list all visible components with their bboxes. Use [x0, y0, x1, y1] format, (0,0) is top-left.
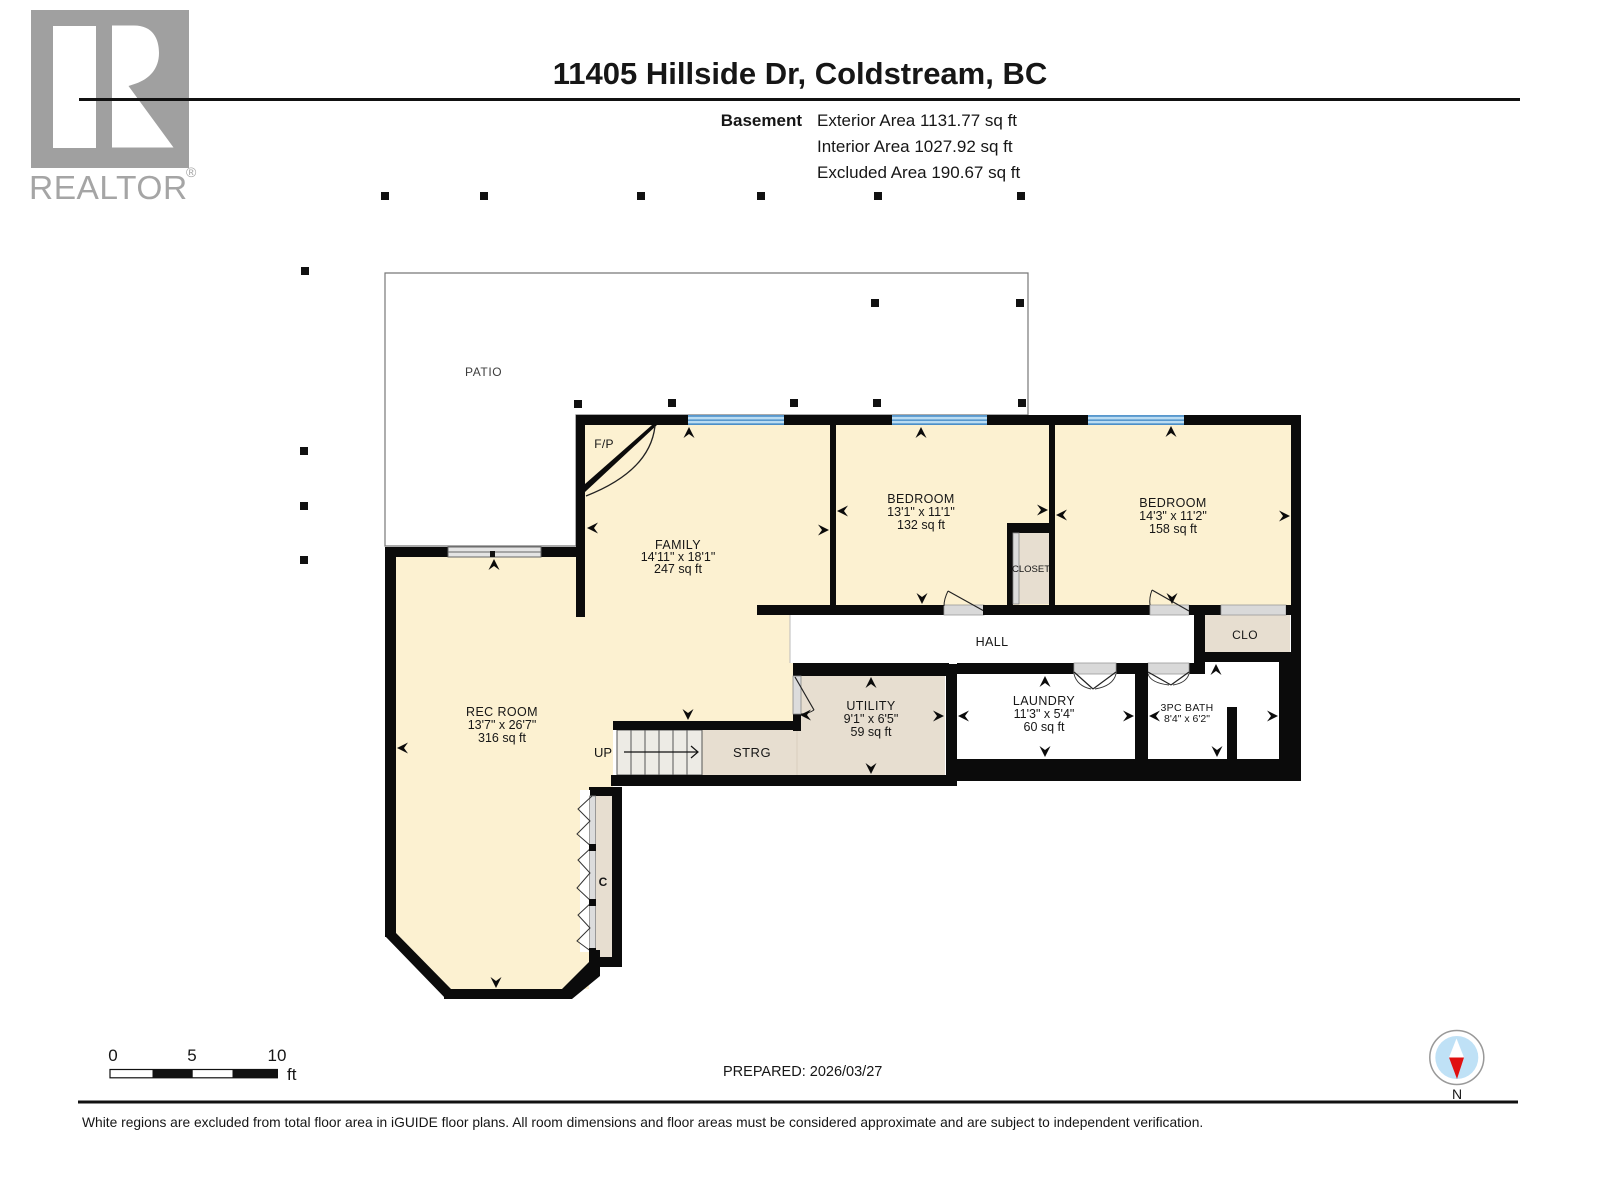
svg-text:11405 Hillside Dr, Coldstream,: 11405 Hillside Dr, Coldstream, BC [553, 56, 1048, 91]
svg-text:N: N [1452, 1086, 1462, 1102]
svg-text:BEDROOM: BEDROOM [1139, 496, 1206, 510]
svg-text:247 sq ft: 247 sq ft [654, 562, 702, 576]
svg-text:CLOSET: CLOSET [1012, 564, 1050, 575]
svg-text:BEDROOM: BEDROOM [887, 492, 954, 506]
svg-text:CLO: CLO [1232, 628, 1258, 642]
svg-text:13'1" x 11'1": 13'1" x 11'1" [887, 505, 955, 519]
svg-text:PATIO: PATIO [465, 365, 502, 379]
svg-text:STRG: STRG [733, 745, 771, 760]
svg-text:11'3" x 5'4": 11'3" x 5'4" [1014, 707, 1075, 721]
svg-text:0: 0 [108, 1046, 117, 1065]
svg-text:132 sq ft: 132 sq ft [897, 518, 945, 532]
svg-text:F/P: F/P [594, 437, 614, 451]
svg-text:5: 5 [187, 1046, 196, 1065]
svg-text:Excluded Area 190.67 sq ft: Excluded Area 190.67 sq ft [817, 163, 1020, 182]
svg-text:316 sq ft: 316 sq ft [478, 731, 526, 745]
svg-text:ft: ft [287, 1065, 297, 1084]
svg-text:REALTOR: REALTOR [29, 170, 188, 207]
svg-text:UP: UP [594, 745, 612, 760]
svg-text:UTILITY: UTILITY [846, 699, 896, 713]
svg-text:9'1" x 6'5": 9'1" x 6'5" [844, 712, 899, 726]
svg-text:Interior Area 1027.92 sq ft: Interior Area 1027.92 sq ft [817, 137, 1013, 156]
svg-text:LAUNDRY: LAUNDRY [1013, 694, 1076, 708]
svg-text:White regions are excluded fro: White regions are excluded from total fl… [82, 1115, 1203, 1130]
svg-text:PREPARED: 2026/03/27: PREPARED: 2026/03/27 [723, 1064, 882, 1080]
svg-text:59 sq ft: 59 sq ft [851, 725, 893, 739]
svg-text:Basement: Basement [721, 111, 803, 130]
svg-text:C: C [599, 875, 608, 889]
svg-text:158 sq ft: 158 sq ft [1149, 522, 1197, 536]
svg-text:®: ® [186, 164, 197, 180]
svg-text:13'7" x 26'7": 13'7" x 26'7" [468, 718, 537, 732]
svg-text:14'3" x 11'2": 14'3" x 11'2" [1139, 509, 1207, 523]
svg-text:HALL: HALL [976, 635, 1009, 649]
svg-text:8'4" x 6'2": 8'4" x 6'2" [1164, 713, 1210, 725]
svg-text:Exterior Area 1131.77 sq ft: Exterior Area 1131.77 sq ft [817, 111, 1017, 130]
svg-text:60 sq ft: 60 sq ft [1024, 720, 1066, 734]
svg-text:10: 10 [268, 1046, 287, 1065]
svg-text:REC ROOM: REC ROOM [466, 705, 538, 719]
